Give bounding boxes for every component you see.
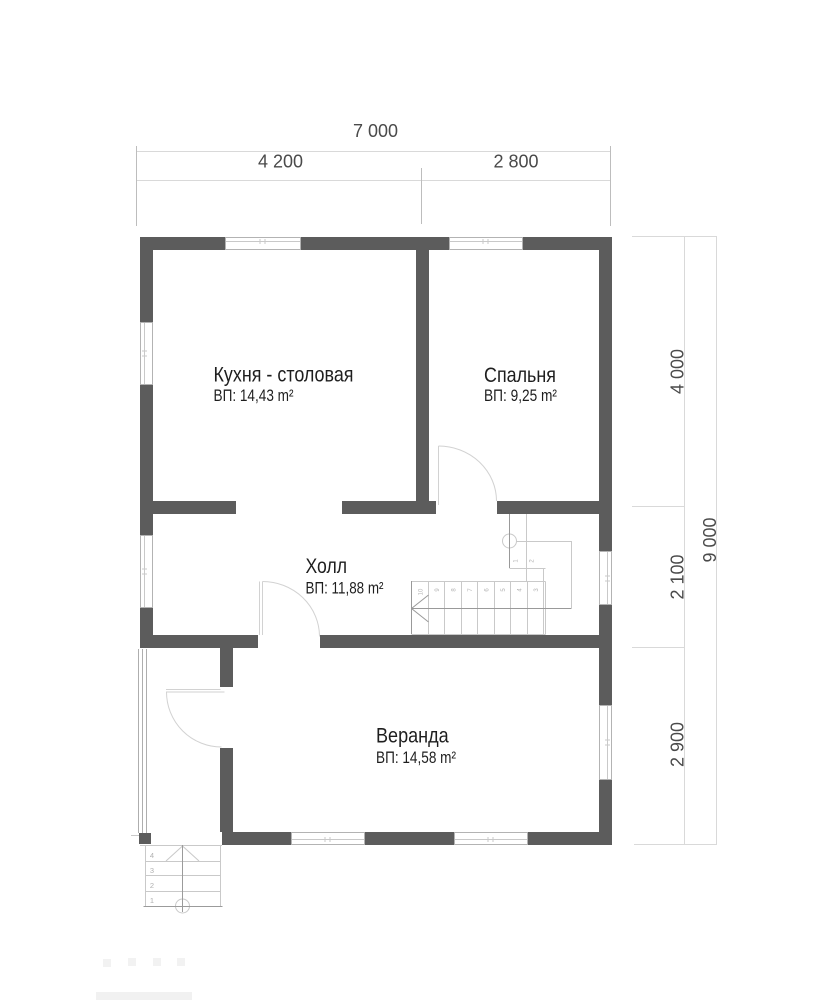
svg-text:10: 10 bbox=[419, 588, 425, 595]
svg-text:ВП: 11,88 m²: ВП: 11,88 m² bbox=[306, 579, 384, 598]
svg-text:ВП: 14,58 m²: ВП: 14,58 m² bbox=[376, 748, 456, 767]
svg-text:7 000: 7 000 bbox=[353, 121, 398, 141]
svg-text:2 900: 2 900 bbox=[668, 722, 688, 767]
svg-text:1: 1 bbox=[150, 896, 154, 905]
svg-text:Холл: Холл bbox=[306, 555, 348, 578]
svg-text:2 100: 2 100 bbox=[668, 554, 688, 599]
svg-text:ВП: 9,25 m²: ВП: 9,25 m² bbox=[484, 386, 557, 405]
svg-text:Спальня: Спальня bbox=[484, 364, 556, 387]
svg-text:2: 2 bbox=[150, 881, 154, 890]
svg-text:Веранда: Веранда bbox=[376, 725, 449, 748]
svg-text:4 200: 4 200 bbox=[258, 152, 303, 172]
svg-text:9 000: 9 000 bbox=[700, 517, 720, 562]
svg-text:4 000: 4 000 bbox=[668, 349, 688, 394]
svg-text:ВП: 14,43 m²: ВП: 14,43 m² bbox=[214, 386, 294, 405]
svg-text:3: 3 bbox=[150, 866, 154, 875]
svg-text:4: 4 bbox=[150, 851, 154, 860]
svg-text:Кухня - столовая: Кухня - столовая bbox=[214, 364, 354, 387]
svg-text:2 800: 2 800 bbox=[493, 152, 538, 172]
